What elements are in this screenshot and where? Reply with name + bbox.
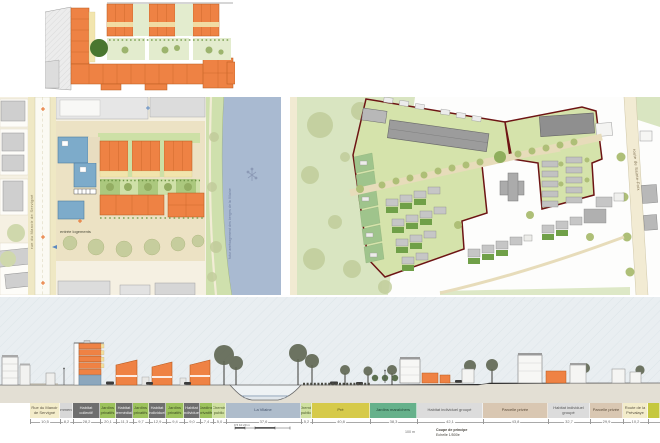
roof-line xyxy=(107,2,233,4)
section-note: 100 m xyxy=(405,430,415,434)
west-road-strip xyxy=(290,97,297,295)
section-label-band: Rue du Manoir de ServignéCommercesHabita… xyxy=(30,403,660,418)
section-caption-title: Coupe de principe xyxy=(436,428,467,433)
river-caption: futur aménagement des berges de la Vilai… xyxy=(228,188,232,259)
annex-gray-building xyxy=(539,113,594,137)
section-dim-cell: 40,8 xyxy=(312,418,370,427)
section-dim-cell: 10,5 xyxy=(30,418,60,427)
section-dim-cell: 32,7 xyxy=(548,418,590,427)
section-band-cell: Commerces xyxy=(60,403,73,418)
section-dim-cell: 43,8 xyxy=(483,418,548,427)
section-dim-cell: 37,6 xyxy=(226,418,301,427)
courtyard-gardens xyxy=(90,38,231,60)
section-dim-cell: 11,3 xyxy=(116,418,133,427)
section-dim-band: 10,58,228,220,111,39,712,99,49,07,45,037… xyxy=(30,418,660,427)
section-band-cell: Habitat individuel xyxy=(149,403,166,418)
site-plan-right-drawing: route de Sainte-Foix xyxy=(290,97,660,295)
street-label: rue du Manoir de Servigné xyxy=(29,194,34,249)
section-band-cell: Chemin public xyxy=(213,403,226,418)
north-sheds xyxy=(56,97,205,119)
section-dim-cell: 28,2 xyxy=(73,418,100,427)
section-band-cell: Habitat intermédiaire xyxy=(116,403,133,418)
section-band-cell: Habitat individuel groupé xyxy=(417,403,483,418)
section-band-cell: Parcelle privée xyxy=(483,403,548,418)
section-caption-scale: Echelle 1/500e xyxy=(436,433,467,438)
section-band-cell: Jardins maraîchers xyxy=(370,403,417,418)
section-band-cell: Jardins privatifs xyxy=(200,403,213,418)
garden-band xyxy=(100,179,200,195)
site-plan-left-panel: rue du Manoir de Servigné xyxy=(0,97,284,295)
section-band-cell: Jardins privatifs xyxy=(166,403,184,418)
section-dim-cell: 9,7 xyxy=(133,418,149,427)
floor-plan-panel xyxy=(45,2,235,94)
site-plan-left-drawing: rue du Manoir de Servigné xyxy=(0,97,284,295)
row-house-clusters xyxy=(107,4,219,36)
section-dim-cell: 38,3 xyxy=(370,418,417,427)
section-dim-cell: 12,9 xyxy=(149,418,166,427)
section-dim-cell: 8,2 xyxy=(60,418,73,427)
large-tree xyxy=(90,39,108,57)
section-band-cell: Habitat individuel xyxy=(184,403,200,418)
section-band-cell: Chemin public xyxy=(301,403,312,418)
section-dim-cell: 7,4 xyxy=(200,418,213,427)
collective-building xyxy=(74,341,104,386)
entrance-label: entrée logements xyxy=(60,229,91,234)
section-band-cell: Habitat individuel groupé xyxy=(548,403,590,418)
white-notch-parcel xyxy=(488,167,536,211)
section-dim-cell: 10,2 xyxy=(623,418,648,427)
section-band-cell: Jardins privatifs xyxy=(100,403,116,418)
section-band-cell: La Vilaine xyxy=(226,403,301,418)
section-band-cell: Route de la Prévalaye xyxy=(623,403,648,418)
presentation-board: rue du Manoir de Servigné xyxy=(0,0,660,443)
section-dim-cell: 9,4 xyxy=(166,418,184,427)
section-band-cell: Parcelle privée xyxy=(590,403,623,418)
section-dim-cell: 20,1 xyxy=(100,418,116,427)
section-band-cell: Jardins privatifs xyxy=(133,403,149,418)
section-dim-cell xyxy=(648,418,660,427)
orange-row-houses-lower xyxy=(100,193,204,218)
section-dim-cell: 5,0 xyxy=(213,418,226,427)
section-band-cell xyxy=(648,403,660,418)
section-dim-cell: 5,2 xyxy=(301,418,312,427)
section-dim-cell: 9,0 xyxy=(184,418,200,427)
existing-building-hatched xyxy=(45,7,71,90)
floor-plan-drawing xyxy=(45,2,235,94)
section-caption: Coupe de principe Echelle 1/500e xyxy=(436,428,467,437)
site-plan-right-panel: route de Sainte-Foix xyxy=(290,97,660,295)
section-band-cell: Rue du Manoir de Servigné xyxy=(30,403,60,418)
section-band-cell: Pré xyxy=(312,403,370,418)
section-band-cell: Habitat collectif xyxy=(73,403,100,418)
section-dim-cell: 29,9 xyxy=(590,418,623,427)
section-dim-cell: 42,1 xyxy=(417,418,483,427)
orange-row-houses-upper xyxy=(100,141,192,177)
